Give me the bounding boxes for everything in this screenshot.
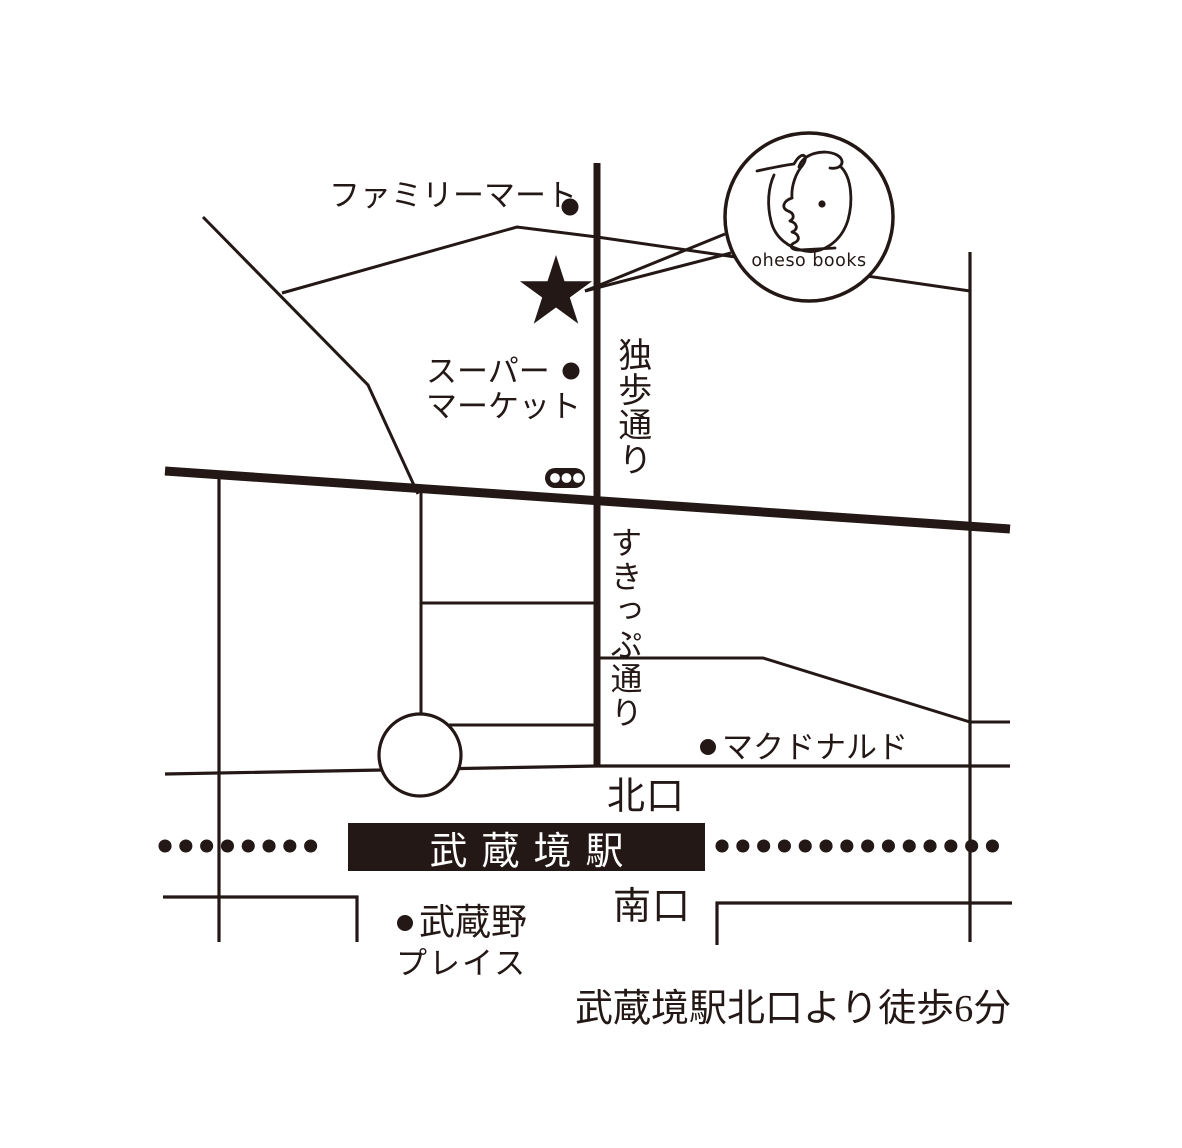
supermarket-label-line1: スーパー <box>426 355 550 388</box>
poi-dot-mcdonalds <box>700 739 716 755</box>
poi-dot-supermarket <box>563 363 580 380</box>
doppo-dori-label: 独歩通り <box>612 337 649 477</box>
south-east-road <box>717 903 1012 945</box>
supermarket-label-line2: マーケット <box>426 390 581 423</box>
northwest-diagonal-road <box>203 217 418 494</box>
south-exit-label: 南口 <box>613 887 691 928</box>
north-exit-label: 北口 <box>607 777 685 818</box>
access-note: 武蔵境駅北口より徒歩6分 <box>575 989 1011 1030</box>
main-road <box>165 471 1010 529</box>
south-west-road <box>163 897 357 942</box>
roundabout-circle <box>379 714 461 796</box>
familymart-label: ファミリーマート <box>329 179 577 212</box>
shop-location-star-icon <box>520 255 592 324</box>
skip-dori-label: すきっぷ通り <box>607 526 642 730</box>
shop-name-label: oheso books <box>749 251 869 271</box>
north-exit-road <box>165 766 1010 774</box>
poi-dot-musashino-place <box>397 915 413 931</box>
station-name-label: 武蔵境駅 <box>348 823 705 871</box>
mcdonalds-label: マクドナルド <box>722 731 908 764</box>
traffic-light-icon <box>545 468 585 488</box>
cross-road-2 <box>597 658 1010 722</box>
logo-bubble-tail <box>585 234 731 291</box>
access-map: oheso books ファミリーマート スーパー マーケット マクドナルド 武… <box>0 0 1182 1148</box>
musashino-place-label-line1: 武蔵野 <box>419 903 527 942</box>
musashino-place-label-line2: プレイス <box>396 947 527 980</box>
logo-bubble <box>725 133 893 301</box>
map-canvas <box>0 0 1182 1148</box>
